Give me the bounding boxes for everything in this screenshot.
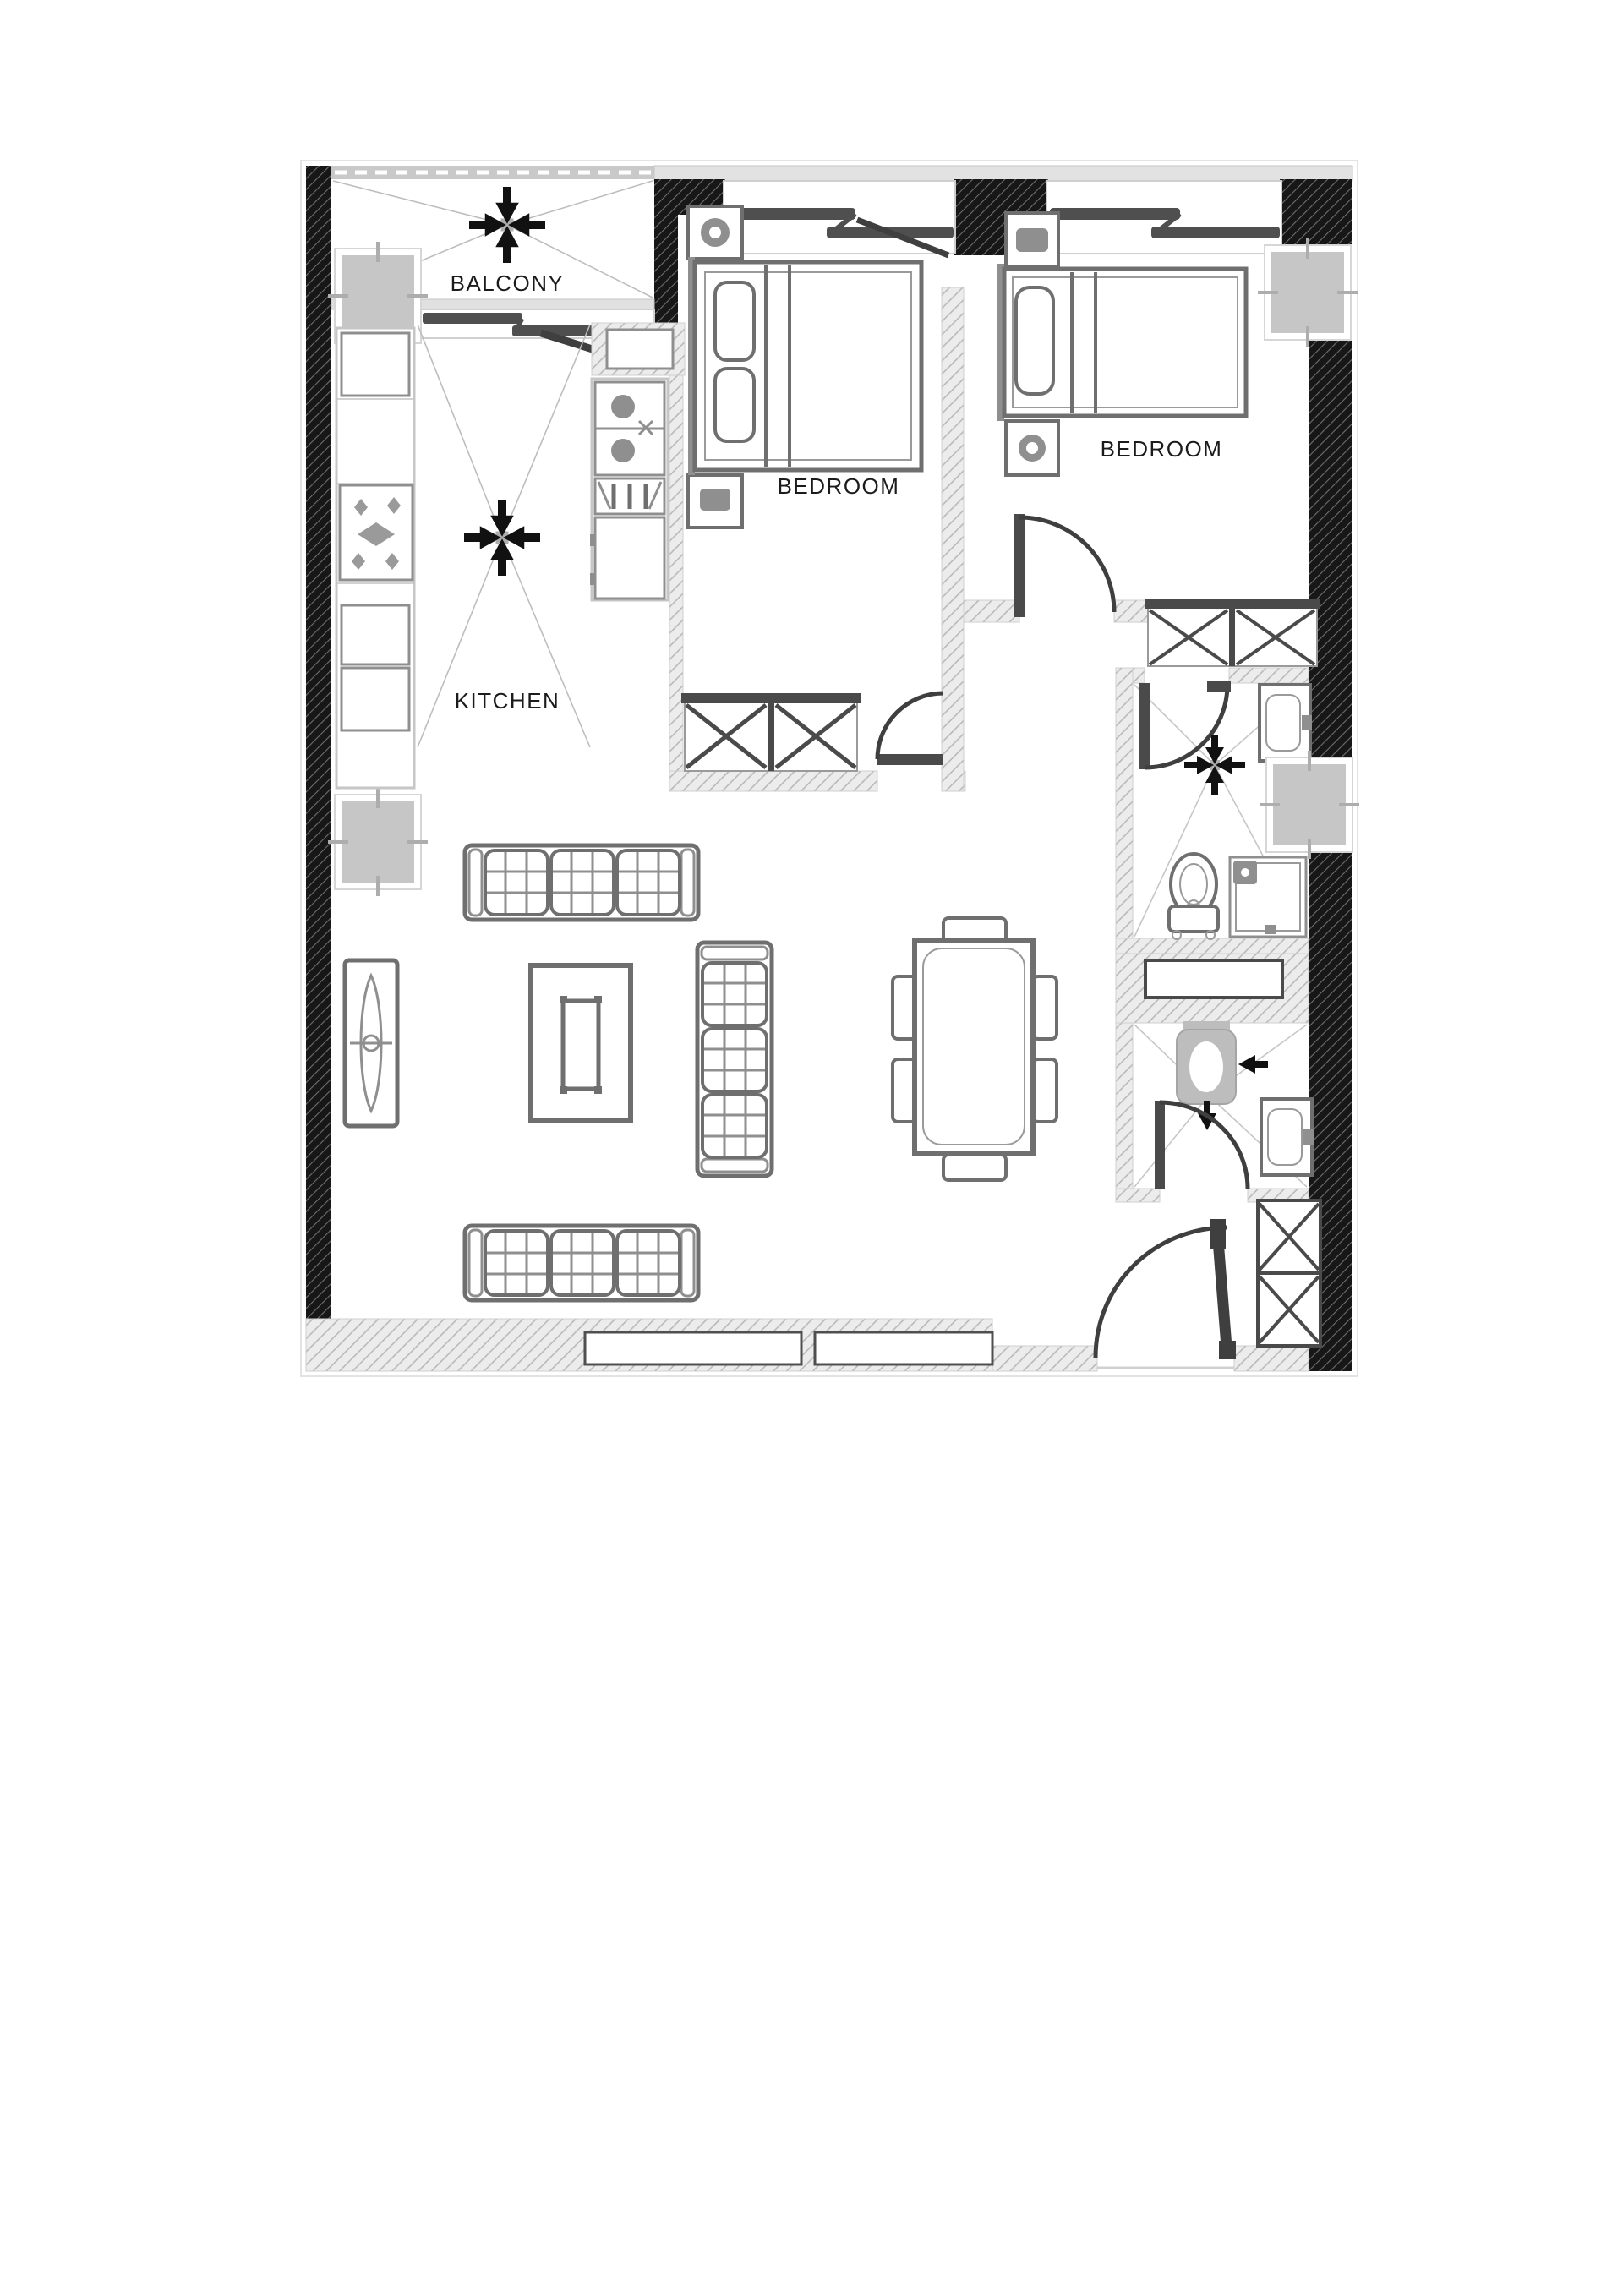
door-swing-arc bbox=[877, 693, 943, 759]
hall-shelf bbox=[1145, 960, 1282, 998]
kitchen-appliance bbox=[595, 517, 664, 599]
entrance-door bbox=[1096, 1219, 1236, 1359]
wall-bedroom2-bottom bbox=[1114, 600, 1148, 622]
entry-closet bbox=[1258, 1200, 1320, 1346]
kitchen-counter-right bbox=[590, 379, 668, 600]
wall-bathroom2-left bbox=[1116, 1023, 1133, 1202]
bedroom1-window bbox=[724, 181, 955, 255]
stove-icon bbox=[340, 485, 413, 580]
ceiling-fan-icon bbox=[469, 187, 545, 263]
kitchen-counter-left bbox=[336, 328, 414, 788]
door-leaf bbox=[1155, 1101, 1165, 1189]
washbasin-icon bbox=[1260, 685, 1312, 761]
sofa-three-seat bbox=[697, 943, 772, 1176]
double-bed-icon bbox=[688, 257, 921, 475]
coffee-table-icon bbox=[531, 965, 631, 1121]
ac-unit-icon bbox=[1260, 751, 1359, 859]
wall-left bbox=[306, 166, 331, 1371]
sofa-three-seat bbox=[465, 845, 698, 920]
wall-bathroom1-bottom bbox=[1116, 938, 1309, 954]
door-leaf bbox=[1139, 683, 1150, 769]
balcony-label: BALCONY bbox=[451, 271, 565, 296]
ceiling-fan-icon bbox=[464, 500, 540, 576]
wall-bottom-right bbox=[1234, 1346, 1309, 1371]
bedroom1-label: BEDROOM bbox=[778, 473, 900, 499]
wall-bedroom1-right bbox=[942, 287, 964, 791]
single-bed-icon bbox=[997, 264, 1246, 421]
dining-chair bbox=[943, 1155, 1006, 1180]
sink-icon bbox=[595, 382, 664, 475]
wall-bathroom1-top bbox=[1229, 668, 1309, 683]
wall-kitchen-bedroom1 bbox=[669, 370, 683, 776]
door-swing-arc bbox=[1096, 1227, 1227, 1358]
wardrobe bbox=[681, 693, 861, 771]
nightstand bbox=[1006, 213, 1058, 267]
wall-top-band bbox=[654, 166, 1352, 181]
nightstand bbox=[1006, 421, 1058, 475]
door-swing-arc bbox=[1019, 517, 1114, 612]
door-leaf bbox=[1014, 514, 1025, 617]
door-swing-arc bbox=[1160, 1102, 1248, 1189]
bedroom2-closet bbox=[1145, 599, 1320, 666]
bedroom1-door bbox=[877, 693, 943, 765]
tv-console-icon bbox=[345, 960, 397, 1126]
bottom-wall-niche bbox=[585, 1332, 801, 1364]
dining-area bbox=[893, 918, 1057, 1180]
kitchen-cabinet bbox=[342, 668, 409, 730]
wall-bedroom2-bottom-stub bbox=[964, 600, 1019, 622]
room-kitchen: KITCHEN bbox=[328, 242, 685, 896]
entrance bbox=[1096, 1200, 1320, 1359]
bottom-wall-niche bbox=[815, 1332, 992, 1364]
dining-table-icon bbox=[915, 940, 1033, 1153]
toilet-icon bbox=[1177, 1021, 1236, 1104]
dining-chair bbox=[1033, 1059, 1057, 1122]
dining-chair bbox=[1033, 976, 1057, 1039]
dish-rack-icon bbox=[595, 478, 664, 514]
kitchen-cabinet bbox=[342, 605, 409, 664]
bedroom2-window bbox=[1028, 181, 1281, 260]
nightstand bbox=[688, 475, 742, 528]
sofa-three-seat bbox=[465, 1226, 698, 1300]
floor-plan-drawing: BALCONY bbox=[0, 0, 1623, 2296]
wall-bottom-step bbox=[992, 1346, 1097, 1371]
nightstand bbox=[688, 206, 742, 259]
wall-bathroom2-bottom bbox=[1116, 1189, 1160, 1202]
wall-bedroom1-bottom bbox=[669, 771, 877, 791]
ac-unit-icon bbox=[328, 788, 428, 896]
wall-top-right-corner bbox=[1280, 179, 1352, 255]
room-bedroom-2: BEDROOM bbox=[997, 181, 1358, 666]
room-bedroom-1: BEDROOM bbox=[681, 181, 955, 771]
kitchen-upper-cabinet bbox=[607, 330, 673, 369]
room-bathroom-2 bbox=[1134, 1021, 1314, 1189]
wall-bathroom1-left bbox=[1116, 668, 1133, 954]
bedroom2-label: BEDROOM bbox=[1101, 436, 1223, 462]
ac-unit-icon bbox=[1258, 238, 1358, 347]
bedroom2-door bbox=[1014, 514, 1114, 617]
door-leaf bbox=[877, 754, 943, 765]
floor-plan-page: BALCONY bbox=[0, 0, 1623, 2296]
kitchen-label: KITCHEN bbox=[455, 688, 560, 713]
toilet-icon bbox=[1169, 854, 1218, 939]
living-room bbox=[345, 845, 772, 1300]
washbasin-icon bbox=[1261, 1099, 1314, 1175]
shower-icon bbox=[1230, 857, 1306, 937]
